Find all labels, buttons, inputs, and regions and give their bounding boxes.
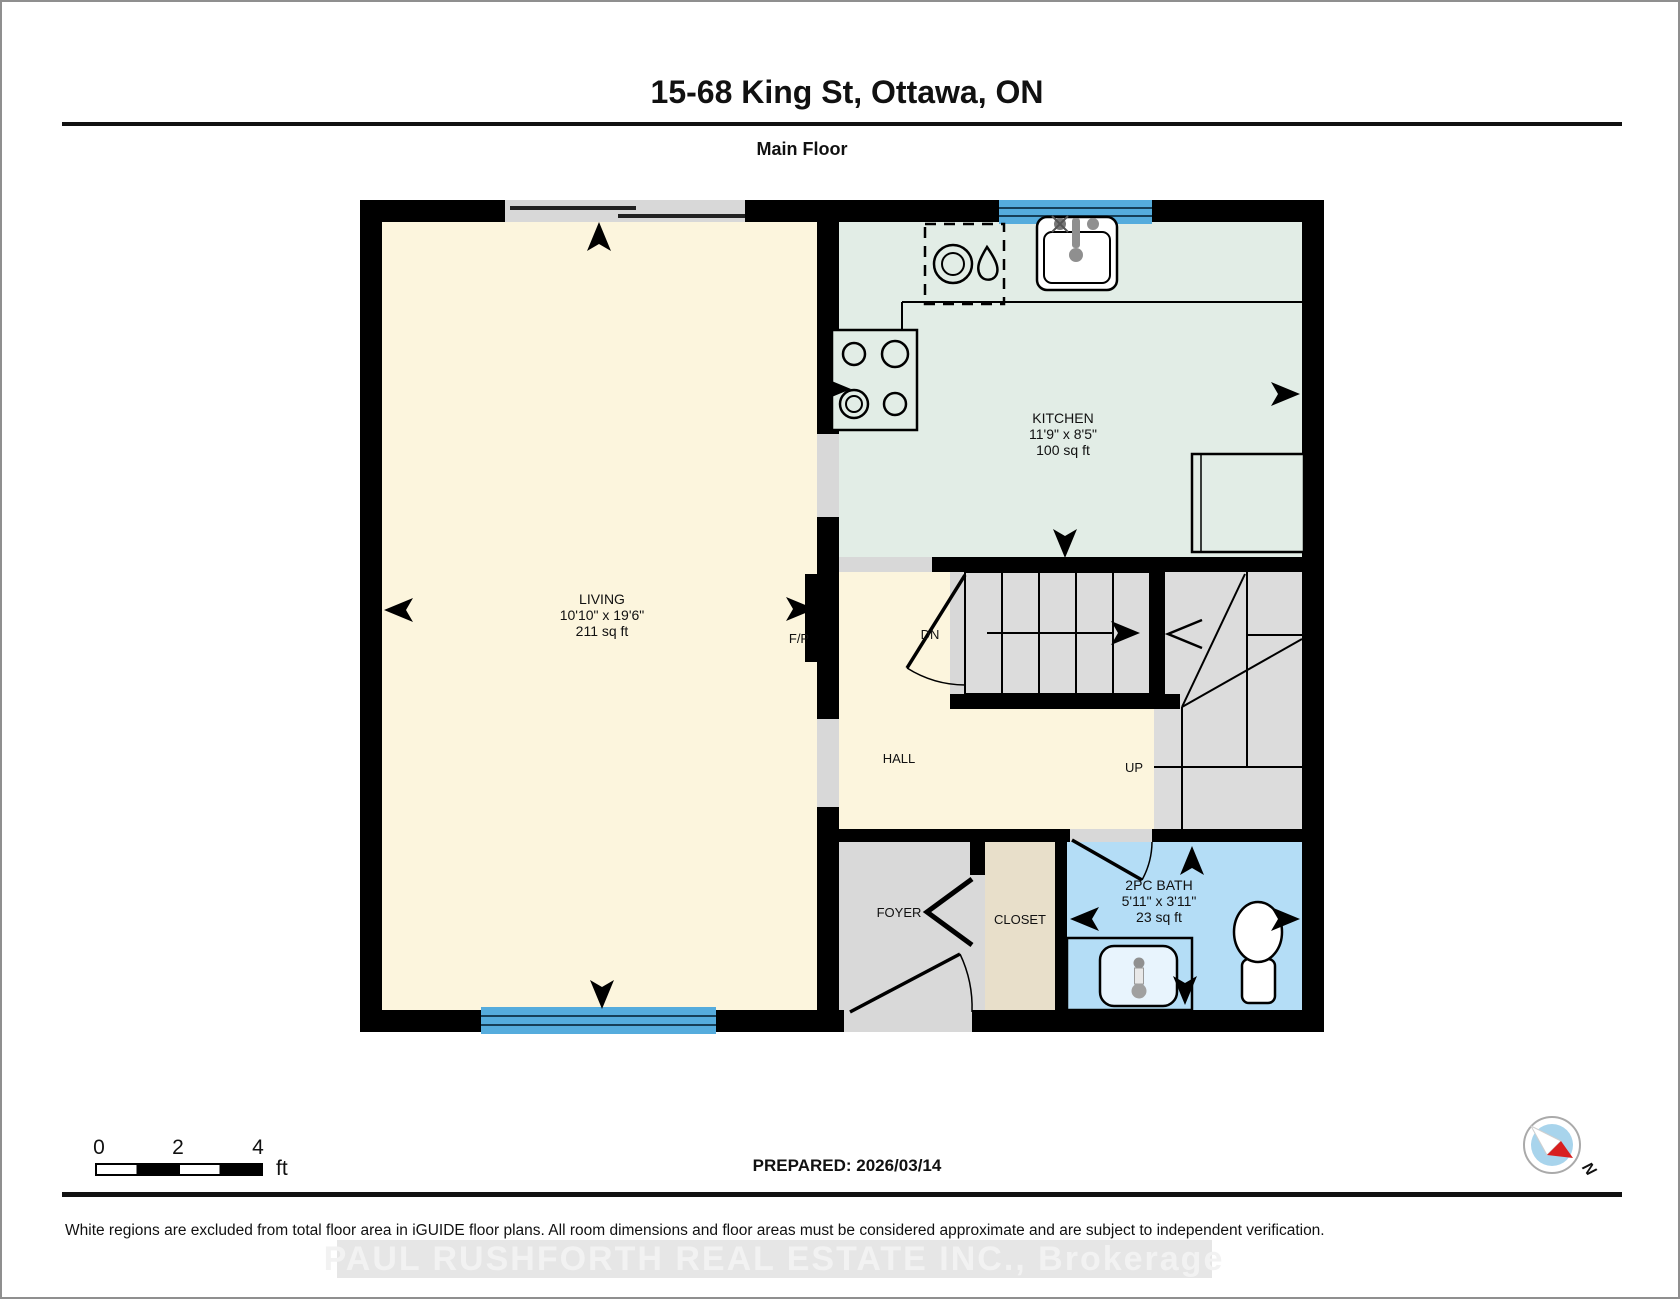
floor-plan-page: 15-68 King St, Ottawa, ON Main Floor [0, 0, 1680, 1299]
closet-label: CLOSET [994, 912, 1046, 927]
title-divider [62, 122, 1622, 126]
wall-right [1302, 200, 1324, 1032]
disclaimer-text: White regions are excluded from total fl… [65, 1222, 1325, 1239]
scale-segment [179, 1164, 221, 1175]
living-window [481, 1007, 716, 1034]
brokerage-watermark: PAUL RUSHFORTH REAL ESTATE INC., Brokera… [324, 1240, 1225, 1278]
wall-kitchen-hall [932, 557, 1302, 572]
scale-segment [221, 1164, 263, 1175]
scale-tick-2: 2 [172, 1136, 184, 1159]
wall-divider-lower [817, 807, 839, 1010]
living-area: 211 sq ft [576, 623, 629, 639]
page-title: 15-68 King St, Ottawa, ON [651, 74, 1044, 110]
scale-segment [96, 1164, 138, 1175]
living-dimensions: 10'10" x 19'6" [560, 607, 645, 623]
sink-drain-icon [1069, 248, 1083, 262]
hall-label: HALL [883, 751, 916, 766]
stairs-down-label: DN [921, 627, 940, 642]
sliding-door-panel-2 [618, 214, 745, 218]
scale-unit: ft [276, 1157, 288, 1180]
toilet-tank [1242, 959, 1275, 1003]
compass: N [1524, 1117, 1599, 1179]
bath-drain-icon [1132, 984, 1147, 999]
bath-area: 23 sq ft [1136, 909, 1182, 925]
wall-stairs-dn-bottom [950, 694, 1180, 709]
scale-tick-4: 4 [252, 1136, 264, 1159]
wall-divider-opening-1 [817, 434, 839, 517]
bath-faucet-stem [1135, 968, 1144, 984]
scale-segment [138, 1164, 180, 1175]
bath-faucet-icon [1134, 958, 1145, 969]
floor-plan-svg: 15-68 King St, Ottawa, ON Main Floor [2, 2, 1680, 1299]
entry-door-opening [844, 1010, 972, 1032]
faucet-icon [1072, 218, 1080, 248]
wall-closet-bath [1055, 842, 1067, 1010]
kitchen-label: KITCHEN [1032, 410, 1093, 426]
faucet-handle-icon [1087, 218, 1099, 230]
footer-divider [62, 1192, 1622, 1197]
kitchen-dimensions: 11'9" x 8'5" [1029, 426, 1097, 442]
scale-bar: 0 2 4 ft [93, 1136, 288, 1180]
wall-divider-mid [817, 517, 839, 719]
wall-stairs-divider [1150, 557, 1165, 697]
wall-closet-stub [970, 829, 985, 875]
floor-subtitle: Main Floor [757, 139, 848, 159]
bath-dimensions: 5'11" x 3'11" [1122, 893, 1197, 909]
sliding-door-opening [505, 200, 745, 222]
wall-top [360, 200, 1324, 222]
kitchen-area: 100 sq ft [1036, 442, 1090, 458]
wall-hall-bath [1152, 829, 1302, 842]
foyer-label: FOYER [877, 905, 922, 920]
bath-label: 2PC BATH [1125, 877, 1192, 893]
compass-north-label: N [1578, 1159, 1599, 1179]
foyer-floor [839, 842, 985, 1010]
sliding-door-panel-1 [510, 206, 636, 210]
fireplace-label: F/P [789, 631, 809, 646]
prepared-date: PREPARED: 2026/03/14 [753, 1156, 942, 1175]
wall-divider-opening-2 [817, 719, 839, 807]
living-label: LIVING [579, 591, 625, 607]
wall-left [360, 200, 382, 1032]
scale-tick-0: 0 [93, 1136, 105, 1159]
stairs-up-label: UP [1125, 760, 1143, 775]
kitchen-hall-opening [839, 557, 932, 572]
wall-hall-foyer [839, 829, 1070, 842]
fridge-icon [1192, 454, 1304, 552]
fireplace-bump [805, 574, 817, 662]
bath-door-opening [1070, 829, 1152, 842]
